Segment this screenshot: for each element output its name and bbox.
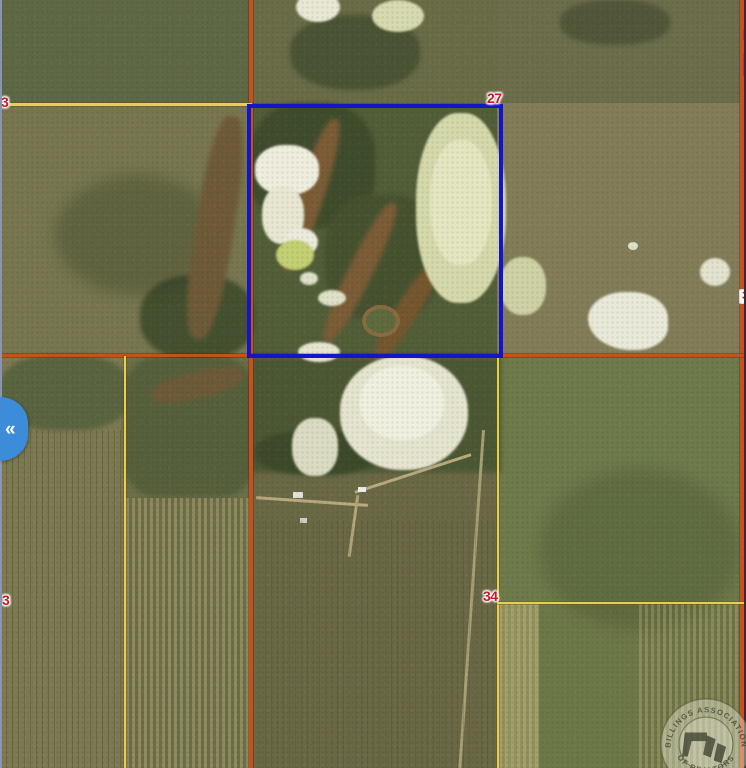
chevrons-left-icon: « [5, 420, 16, 439]
section-line-yellow-vertical-left [124, 356, 127, 768]
section-number-label: 34 [483, 589, 498, 603]
realtor-association-watermark-logo: BILLINGS ASSOCIATION OF REALTORS [658, 696, 746, 768]
section-number-label: 3 [1, 95, 8, 109]
section-line-yellow-horizontal-top-left [0, 103, 252, 106]
left-panel-edge [0, 0, 2, 768]
map-viewport[interactable]: 3 27 3 3 34 « BILLINGS ASSOCIATION OF RE… [0, 0, 746, 768]
parcel-boundary-highlight[interactable] [247, 104, 503, 358]
section-line-orange-vertical-right [740, 0, 744, 768]
section-line-yellow-vertical-right [497, 356, 500, 768]
section-line-yellow-horizontal-bottom-right [497, 602, 746, 605]
section-number-label: 27 [487, 91, 502, 105]
section-number-label: 3 [2, 593, 9, 607]
